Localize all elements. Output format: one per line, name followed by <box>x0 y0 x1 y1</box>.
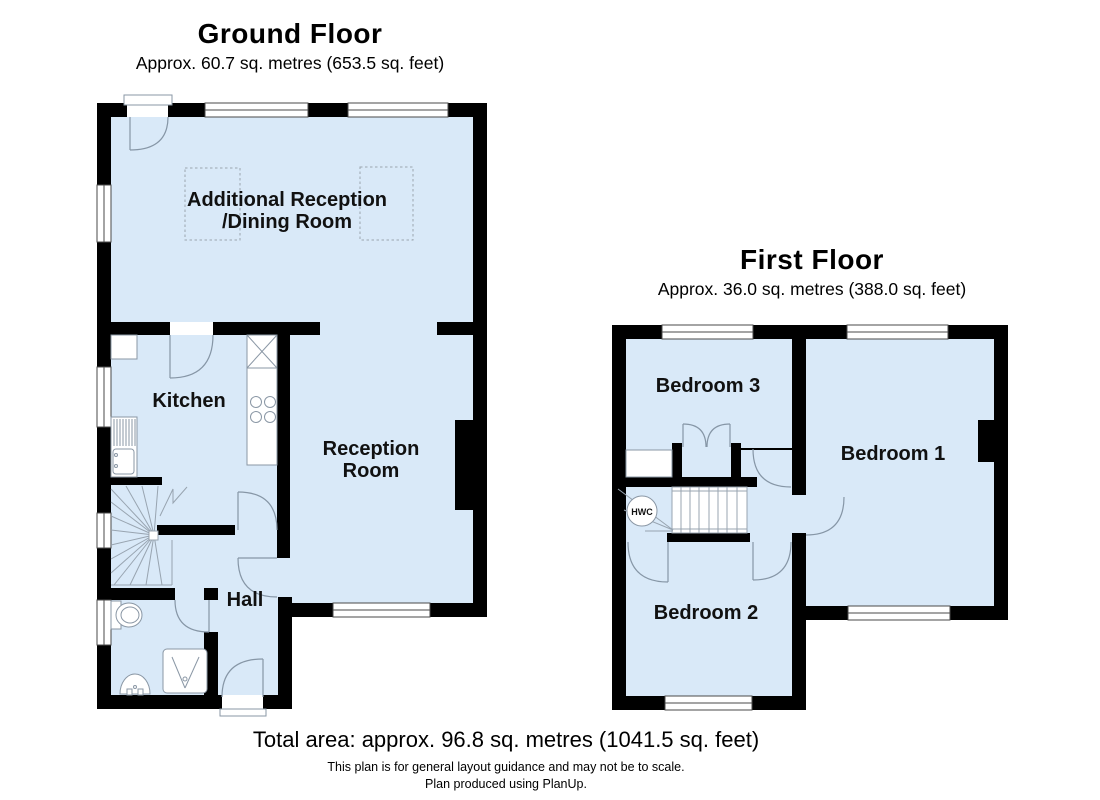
kitchen-door-gap <box>170 322 213 335</box>
hwc-label: HWC <box>631 507 653 517</box>
room-label-bedroom-2: Bedroom 2 <box>654 602 758 624</box>
room-label-reception: Reception <box>323 438 420 460</box>
first-floor-plan: HWC Bedroom 3 Bedroom 1 Bedroom 2 <box>612 325 1008 710</box>
chimney-breast <box>978 420 994 462</box>
hot-water-cylinder: HWC <box>627 496 657 526</box>
ground-floor-plan: Additional Reception /Dining Room Kitche… <box>97 95 487 716</box>
toilet <box>111 601 142 629</box>
floor-plan-page: Ground Floor Approx. 60.7 sq. metres (65… <box>0 0 1100 800</box>
total-area-text: Total area: approx. 96.8 sq. metres (104… <box>56 727 956 753</box>
room-label-hall: Hall <box>227 589 264 611</box>
stair-newel <box>149 531 158 540</box>
chimney-breast <box>455 420 473 510</box>
disclaimer-text: This plan is for general layout guidance… <box>56 760 956 774</box>
kitchen-recess <box>111 335 137 359</box>
front-step <box>220 709 266 716</box>
room-label-dining-room: /Dining Room <box>222 211 352 233</box>
room-label-additional-reception: Additional Reception <box>187 189 387 211</box>
airing-cupboard <box>626 450 672 477</box>
room-label-bedroom-3: Bedroom 3 <box>656 375 760 397</box>
room-label-bedroom-1: Bedroom 1 <box>841 443 945 465</box>
kitchen-sink <box>111 417 137 477</box>
floor-plan-drawing: Additional Reception /Dining Room Kitche… <box>0 0 1100 800</box>
kitchen-worktop-hob <box>247 335 277 465</box>
room-label-kitchen: Kitchen <box>152 390 225 412</box>
entrance-threshold <box>124 95 172 105</box>
front-door-gap <box>222 695 263 709</box>
room-label-reception-2: Room <box>343 460 400 482</box>
credit-text: Plan produced using PlanUp. <box>56 777 956 791</box>
shower <box>163 649 207 693</box>
